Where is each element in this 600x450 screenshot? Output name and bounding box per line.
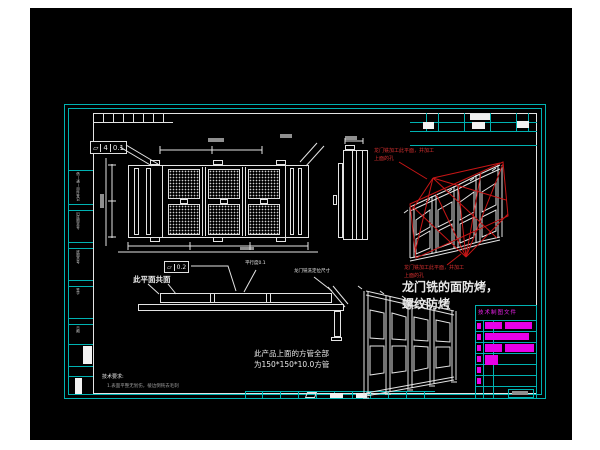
- iso-view-lower: [358, 286, 457, 398]
- cad-screenshot-page: 借(通)用件登记 旧底图总号 底图总号 签字 日期 ▱ 4 0.1: [0, 0, 600, 450]
- linework-layer: [0, 0, 600, 450]
- leader-and-dimension-lines: [106, 138, 363, 307]
